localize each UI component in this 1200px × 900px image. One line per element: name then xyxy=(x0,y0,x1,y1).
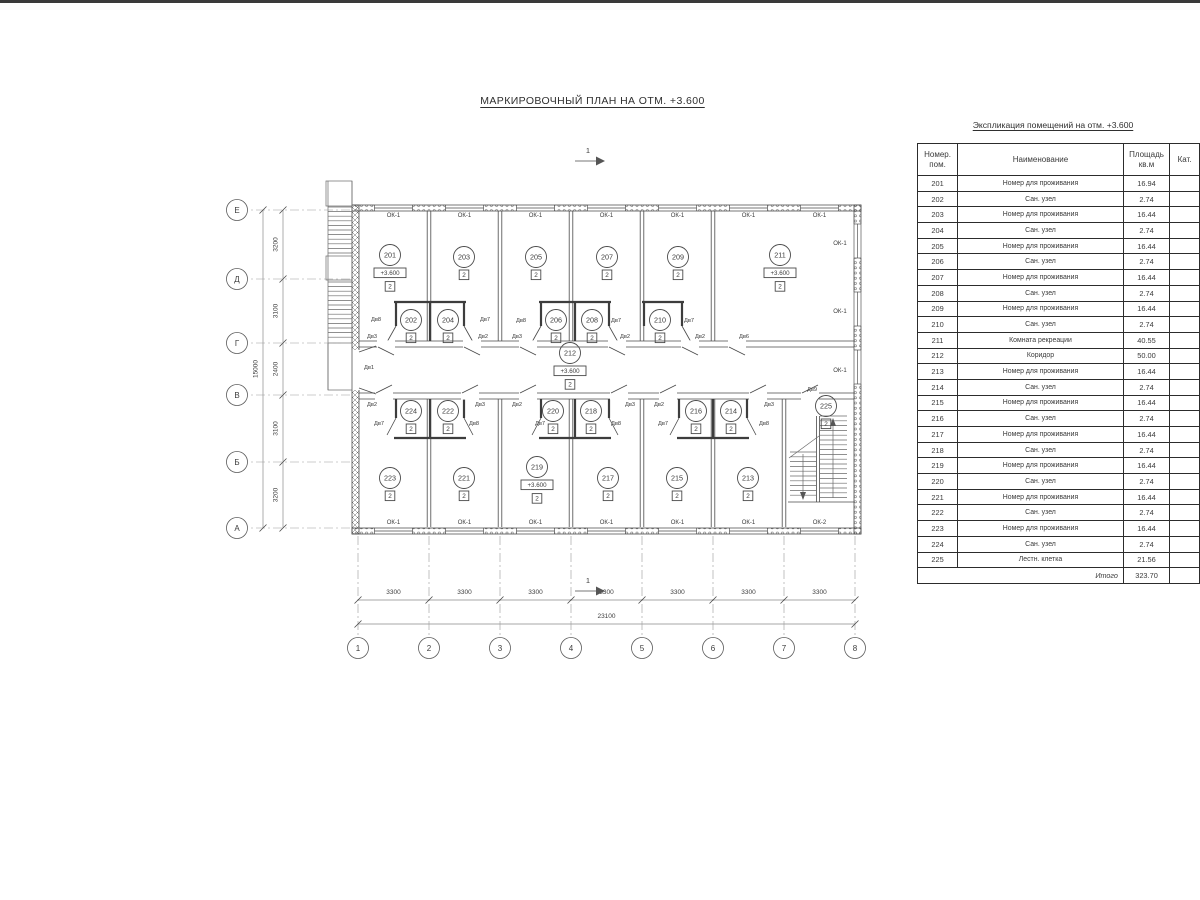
room-number-cell: 203 xyxy=(918,207,958,223)
room-name-cell: Номер для проживания xyxy=(958,489,1124,505)
svg-text:2: 2 xyxy=(388,284,392,291)
table-row: 203Номер для проживания16.44 xyxy=(918,207,1200,223)
table-row: 215Номер для проживания16.44 xyxy=(918,395,1200,411)
svg-text:203: 203 xyxy=(458,253,470,262)
room-label: 2092 xyxy=(668,247,689,280)
svg-text:Дв3: Дв3 xyxy=(367,334,377,340)
explication-table-wrap: Номер.пом. Наименование Площадькв.м Кат.… xyxy=(917,143,1200,584)
room-area-cell: 2.74 xyxy=(1123,442,1169,458)
svg-text:ОК-1: ОК-1 xyxy=(833,309,847,315)
exterior-stair-steps xyxy=(328,207,352,337)
svg-text:2: 2 xyxy=(388,493,392,500)
table-row: 209Номер для проживания16.44 xyxy=(918,301,1200,317)
svg-text:3300: 3300 xyxy=(670,589,685,596)
svg-text:Дв2: Дв2 xyxy=(695,334,705,340)
room-area-cell: 16.44 xyxy=(1123,395,1169,411)
svg-text:ОК-1: ОК-1 xyxy=(529,520,543,526)
svg-text:ОК-1: ОК-1 xyxy=(458,520,472,526)
room-label: 2182 xyxy=(581,401,602,434)
svg-text:ОК-1: ОК-1 xyxy=(529,213,543,219)
table-row: 211Комната рекреации40.55 xyxy=(918,332,1200,348)
room-number-cell: 211 xyxy=(918,332,958,348)
room-cat-cell xyxy=(1170,489,1200,505)
room-area-cell: 16.44 xyxy=(1123,458,1169,474)
room-number-cell: 221 xyxy=(918,489,958,505)
room-name-cell: Сан. узел xyxy=(958,223,1124,239)
svg-text:Б: Б xyxy=(234,458,239,467)
room-cat-cell xyxy=(1170,317,1200,333)
room-name-cell: Сан. узел xyxy=(958,191,1124,207)
svg-text:2: 2 xyxy=(658,335,662,342)
svg-text:Дв9: Дв9 xyxy=(807,387,817,393)
room-area-cell: 2.74 xyxy=(1123,411,1169,427)
svg-text:ОК-1: ОК-1 xyxy=(600,520,614,526)
room-number-cell: 207 xyxy=(918,270,958,286)
svg-text:2: 2 xyxy=(551,426,555,433)
room-number-cell: 215 xyxy=(918,395,958,411)
svg-text:2: 2 xyxy=(675,493,679,500)
svg-text:Дв7: Дв7 xyxy=(374,421,384,427)
svg-text:ОК-1: ОК-1 xyxy=(833,368,847,374)
col-cat: Кат. xyxy=(1170,144,1200,176)
svg-text:Д: Д xyxy=(234,275,240,284)
svg-text:3300: 3300 xyxy=(457,589,472,596)
svg-text:Дв2: Дв2 xyxy=(367,402,377,408)
svg-text:219: 219 xyxy=(531,463,543,472)
room-cat-cell xyxy=(1170,301,1200,317)
svg-text:2: 2 xyxy=(694,426,698,433)
room-area-cell: 16.44 xyxy=(1123,238,1169,254)
svg-text:Е: Е xyxy=(234,206,239,215)
svg-text:1: 1 xyxy=(356,644,361,653)
svg-text:204: 204 xyxy=(442,316,454,325)
svg-text:Дв3: Дв3 xyxy=(475,402,485,408)
svg-text:3100: 3100 xyxy=(273,421,280,436)
room-number-cell: 210 xyxy=(918,317,958,333)
svg-text:5: 5 xyxy=(640,644,645,653)
room-label: 2102 xyxy=(650,310,671,343)
room-number-cell: 216 xyxy=(918,411,958,427)
svg-text:Дв1: Дв1 xyxy=(364,365,374,371)
room-cat-cell xyxy=(1170,364,1200,380)
svg-text:Дв6: Дв6 xyxy=(739,334,749,340)
svg-text:А: А xyxy=(234,524,240,533)
exterior-stair xyxy=(326,181,352,390)
svg-text:+3.600: +3.600 xyxy=(527,482,547,489)
svg-text:213: 213 xyxy=(742,474,754,483)
room-cat-cell xyxy=(1170,427,1200,443)
room-label: 2202 xyxy=(543,401,564,434)
svg-text:216: 216 xyxy=(690,407,702,416)
svg-text:3: 3 xyxy=(498,644,503,653)
svg-text:15000: 15000 xyxy=(253,360,260,378)
svg-text:ОК-1: ОК-1 xyxy=(742,520,756,526)
room-cat-cell xyxy=(1170,379,1200,395)
svg-text:2: 2 xyxy=(535,496,539,503)
svg-text:Дв8: Дв8 xyxy=(759,421,769,427)
table-row: 201Номер для проживания16.94 xyxy=(918,176,1200,192)
svg-text:201: 201 xyxy=(384,251,396,260)
svg-text:206: 206 xyxy=(550,316,562,325)
room-area-cell: 16.44 xyxy=(1123,489,1169,505)
room-cat-cell xyxy=(1170,348,1200,364)
room-name-cell: Сан. узел xyxy=(958,379,1124,395)
room-name-cell: Номер для проживания xyxy=(958,521,1124,537)
room-number-cell: 218 xyxy=(918,442,958,458)
svg-text:Дв8: Дв8 xyxy=(371,317,381,323)
room-number-cell: 201 xyxy=(918,176,958,192)
room-area-cell: 2.74 xyxy=(1123,317,1169,333)
room-name-cell: Номер для проживания xyxy=(958,238,1124,254)
room-area-cell: 2.74 xyxy=(1123,505,1169,521)
svg-text:Дв7: Дв7 xyxy=(658,421,668,427)
room-cat-cell xyxy=(1170,191,1200,207)
room-cat-cell xyxy=(1170,270,1200,286)
total-cat-cell xyxy=(1170,568,1200,584)
room-cat-cell xyxy=(1170,207,1200,223)
svg-text:ОК-1: ОК-1 xyxy=(387,213,401,219)
room-area-cell: 2.74 xyxy=(1123,474,1169,490)
room-cat-cell xyxy=(1170,521,1200,537)
room-area-cell: 16.44 xyxy=(1123,364,1169,380)
table-row: 217Номер для проживания16.44 xyxy=(918,427,1200,443)
room-area-cell: 50.00 xyxy=(1123,348,1169,364)
room-number-cell: 213 xyxy=(918,364,958,380)
table-row: 222Сан. узел2.74 xyxy=(918,505,1200,521)
table-row: 219Номер для проживания16.44 xyxy=(918,458,1200,474)
drawing-sheet: МАРКИРОВОЧНЫЙ ПЛАН НА ОТМ. +3.600 Экспли… xyxy=(0,0,1200,900)
svg-text:3200: 3200 xyxy=(273,237,280,252)
svg-text:215: 215 xyxy=(671,474,683,483)
room-number-cell: 206 xyxy=(918,254,958,270)
svg-text:1: 1 xyxy=(586,146,590,155)
room-name-cell: Лестн. клетка xyxy=(958,552,1124,568)
room-number-cell: 220 xyxy=(918,474,958,490)
corridor-doors-group xyxy=(375,340,819,399)
room-name-cell: Коридор xyxy=(958,348,1124,364)
svg-text:ОК-1: ОК-1 xyxy=(813,213,827,219)
room-label: 2022 xyxy=(401,310,422,343)
table-row: 224Сан. узел2.74 xyxy=(918,536,1200,552)
col-num: Номер.пом. xyxy=(918,144,958,176)
svg-text:Дв2: Дв2 xyxy=(654,402,664,408)
svg-text:Дв2: Дв2 xyxy=(512,402,522,408)
room-name-cell: Номер для проживания xyxy=(958,207,1124,223)
room-cat-cell xyxy=(1170,442,1200,458)
svg-text:+3.600: +3.600 xyxy=(770,270,790,277)
room-area-cell: 16.44 xyxy=(1123,521,1169,537)
svg-text:222: 222 xyxy=(442,407,454,416)
room-number-cell: 209 xyxy=(918,301,958,317)
svg-text:225: 225 xyxy=(820,402,832,411)
svg-text:3300: 3300 xyxy=(741,589,756,596)
room-number-cell: 219 xyxy=(918,458,958,474)
table-row: 208Сан. узел2.74 xyxy=(918,285,1200,301)
room-area-cell: 2.74 xyxy=(1123,223,1169,239)
svg-text:218: 218 xyxy=(585,407,597,416)
room-number-cell: 204 xyxy=(918,223,958,239)
table-row: 225Лестн. клетка21.56 xyxy=(918,552,1200,568)
dim-labels-group: 3300330033003300330033003300231003200310… xyxy=(253,237,828,620)
svg-text:8: 8 xyxy=(853,644,858,653)
room-cat-cell xyxy=(1170,254,1200,270)
room-label: 201+3.6002 xyxy=(374,245,406,292)
room-number-cell: 225 xyxy=(918,552,958,568)
svg-text:212: 212 xyxy=(564,349,576,358)
svg-text:Дв8: Дв8 xyxy=(516,318,526,324)
svg-text:220: 220 xyxy=(547,407,559,416)
svg-text:209: 209 xyxy=(672,253,684,262)
explication-header-row: Номер.пом. Наименование Площадькв.м Кат. xyxy=(918,144,1200,176)
svg-text:3300: 3300 xyxy=(812,589,827,596)
svg-text:ОК-1: ОК-1 xyxy=(458,213,472,219)
svg-text:Дв7: Дв7 xyxy=(611,318,621,324)
room-label: 2142 xyxy=(721,401,742,434)
svg-text:224: 224 xyxy=(405,407,417,416)
svg-text:Дв2: Дв2 xyxy=(620,334,630,340)
svg-text:ОК-1: ОК-1 xyxy=(833,241,847,247)
svg-text:3200: 3200 xyxy=(273,487,280,502)
svg-text:2: 2 xyxy=(676,272,680,279)
room-area-cell: 2.74 xyxy=(1123,536,1169,552)
room-label: 2222 xyxy=(438,401,459,434)
svg-text:ОК-1: ОК-1 xyxy=(671,520,685,526)
room-area-cell: 16.44 xyxy=(1123,427,1169,443)
col-name: Наименование xyxy=(958,144,1124,176)
svg-text:6: 6 xyxy=(711,644,716,653)
table-row: 213Номер для проживания16.44 xyxy=(918,364,1200,380)
table-row: 202Сан. узел2.74 xyxy=(918,191,1200,207)
room-label: 2062 xyxy=(546,310,567,343)
svg-text:3300: 3300 xyxy=(528,589,543,596)
svg-text:Г: Г xyxy=(235,339,240,348)
room-name-cell: Сан. узел xyxy=(958,411,1124,427)
table-row: 220Сан. узел2.74 xyxy=(918,474,1200,490)
table-row: 204Сан. узел2.74 xyxy=(918,223,1200,239)
room-label: 2172 xyxy=(598,468,619,501)
svg-text:2: 2 xyxy=(729,426,733,433)
table-row: 206Сан. узел2.74 xyxy=(918,254,1200,270)
room-area-cell: 2.74 xyxy=(1123,285,1169,301)
svg-text:2: 2 xyxy=(589,426,593,433)
svg-text:211: 211 xyxy=(774,251,785,260)
table-row: 223Номер для проживания16.44 xyxy=(918,521,1200,537)
room-name-cell: Номер для проживания xyxy=(958,395,1124,411)
room-label: 2042 xyxy=(438,310,459,343)
table-row: 212Коридор50.00 xyxy=(918,348,1200,364)
table-row: 207Номер для проживания16.44 xyxy=(918,270,1200,286)
room-cat-cell xyxy=(1170,395,1200,411)
room-number-cell: 223 xyxy=(918,521,958,537)
table-row: 218Сан. узел2.74 xyxy=(918,442,1200,458)
svg-text:Дв7: Дв7 xyxy=(535,421,545,427)
room-area-cell: 16.44 xyxy=(1123,207,1169,223)
room-name-cell: Номер для проживания xyxy=(958,301,1124,317)
svg-text:2: 2 xyxy=(446,426,450,433)
explication-table: Номер.пом. Наименование Площадькв.м Кат.… xyxy=(917,143,1200,584)
total-row: Итого 323.70 xyxy=(918,568,1200,584)
svg-text:221: 221 xyxy=(458,474,470,483)
svg-text:ОК-1: ОК-1 xyxy=(671,213,685,219)
room-area-cell: 21.56 xyxy=(1123,552,1169,568)
svg-text:2: 2 xyxy=(462,272,466,279)
room-label: 2232 xyxy=(380,468,401,501)
svg-text:217: 217 xyxy=(602,474,614,483)
svg-text:+3.600: +3.600 xyxy=(560,368,580,375)
svg-text:207: 207 xyxy=(601,253,613,262)
table-row: 214Сан. узел2.74 xyxy=(918,379,1200,395)
room-label: 2162 xyxy=(686,401,707,434)
svg-text:2400: 2400 xyxy=(273,361,280,376)
svg-text:+3.600: +3.600 xyxy=(380,270,400,277)
room-cat-cell xyxy=(1170,285,1200,301)
svg-text:Дв3: Дв3 xyxy=(764,402,774,408)
room-number-cell: 214 xyxy=(918,379,958,395)
svg-text:2: 2 xyxy=(824,421,828,428)
room-area-cell: 2.74 xyxy=(1123,379,1169,395)
rooms-group: 201+3.6002202220322042205220622072208220… xyxy=(374,245,837,504)
windows-group xyxy=(375,204,862,534)
room-cat-cell xyxy=(1170,176,1200,192)
room-name-cell: Сан. узел xyxy=(958,442,1124,458)
room-cat-cell xyxy=(1170,505,1200,521)
svg-text:2: 2 xyxy=(534,272,538,279)
svg-text:4: 4 xyxy=(569,644,574,653)
room-name-cell: Сан. узел xyxy=(958,317,1124,333)
svg-text:Дв7: Дв7 xyxy=(684,318,694,324)
svg-text:ОК-1: ОК-1 xyxy=(742,213,756,219)
svg-text:2: 2 xyxy=(568,382,572,389)
svg-text:Дв2: Дв2 xyxy=(478,334,488,340)
room-name-cell: Номер для проживания xyxy=(958,458,1124,474)
room-label: 2052 xyxy=(526,247,547,280)
room-label: 211+3.6002 xyxy=(764,245,796,292)
room-name-cell: Номер для проживания xyxy=(958,364,1124,380)
svg-text:2: 2 xyxy=(590,335,594,342)
svg-text:2: 2 xyxy=(409,335,413,342)
svg-text:2: 2 xyxy=(605,272,609,279)
svg-text:2: 2 xyxy=(462,493,466,500)
room-area-cell: 16.94 xyxy=(1123,176,1169,192)
svg-text:2: 2 xyxy=(446,335,450,342)
room-cat-cell xyxy=(1170,223,1200,239)
svg-text:2: 2 xyxy=(606,493,610,500)
table-row: 205Номер для проживания16.44 xyxy=(918,238,1200,254)
room-number-cell: 222 xyxy=(918,505,958,521)
svg-text:202: 202 xyxy=(405,316,417,325)
room-area-cell: 2.74 xyxy=(1123,254,1169,270)
svg-text:ОК-2: ОК-2 xyxy=(813,520,827,526)
room-cat-cell xyxy=(1170,411,1200,427)
room-label: 2072 xyxy=(597,247,618,280)
room-name-cell: Комната рекреации xyxy=(958,332,1124,348)
room-name-cell: Сан. узел xyxy=(958,505,1124,521)
room-cat-cell xyxy=(1170,332,1200,348)
room-name-cell: Сан. узел xyxy=(958,254,1124,270)
svg-text:ОК-1: ОК-1 xyxy=(600,213,614,219)
room-area-cell: 16.44 xyxy=(1123,301,1169,317)
staircase-steps xyxy=(790,416,847,498)
room-area-cell: 40.55 xyxy=(1123,332,1169,348)
room-cat-cell xyxy=(1170,536,1200,552)
room-name-cell: Номер для проживания xyxy=(958,270,1124,286)
svg-text:ОК-1: ОК-1 xyxy=(387,520,401,526)
room-label: 2212 xyxy=(454,468,475,501)
svg-text:23100: 23100 xyxy=(597,613,615,620)
svg-text:205: 205 xyxy=(530,253,542,262)
room-name-cell: Сан. узел xyxy=(958,285,1124,301)
room-label: 2082 xyxy=(582,310,603,343)
room-label: 212+3.6002 xyxy=(554,343,586,390)
svg-text:В: В xyxy=(234,391,239,400)
room-area-cell: 16.44 xyxy=(1123,270,1169,286)
svg-text:223: 223 xyxy=(384,474,396,483)
svg-text:3100: 3100 xyxy=(273,303,280,318)
room-cat-cell xyxy=(1170,238,1200,254)
svg-text:Дв3: Дв3 xyxy=(512,334,522,340)
room-label: 219+3.6002 xyxy=(521,457,553,504)
room-cat-cell xyxy=(1170,474,1200,490)
room-name-cell: Номер для проживания xyxy=(958,427,1124,443)
table-row: 221Номер для проживания16.44 xyxy=(918,489,1200,505)
svg-text:2: 2 xyxy=(427,644,432,653)
svg-text:2: 2 xyxy=(778,284,782,291)
room-name-cell: Сан. узел xyxy=(958,474,1124,490)
room-number-cell: 224 xyxy=(918,536,958,552)
svg-text:Дв7: Дв7 xyxy=(480,317,490,323)
room-name-cell: Сан. узел xyxy=(958,536,1124,552)
table-row: 216Сан. узел2.74 xyxy=(918,411,1200,427)
explication-body: 201Номер для проживания16.94202Сан. узел… xyxy=(918,176,1200,568)
svg-text:2: 2 xyxy=(554,335,558,342)
svg-text:2: 2 xyxy=(746,493,750,500)
total-value: 323.70 xyxy=(1123,568,1169,584)
room-label: 2152 xyxy=(667,468,688,501)
svg-text:Дв8: Дв8 xyxy=(611,421,621,427)
svg-text:1: 1 xyxy=(586,576,590,585)
room-number-cell: 205 xyxy=(918,238,958,254)
col-area: Площадькв.м xyxy=(1123,144,1169,176)
svg-text:214: 214 xyxy=(725,407,737,416)
svg-text:210: 210 xyxy=(654,316,666,325)
svg-text:7: 7 xyxy=(782,644,787,653)
room-number-cell: 217 xyxy=(918,427,958,443)
svg-text:3300: 3300 xyxy=(386,589,401,596)
room-label: 2032 xyxy=(454,247,475,280)
table-row: 210Сан. узел2.74 xyxy=(918,317,1200,333)
room-cat-cell xyxy=(1170,458,1200,474)
room-number-cell: 212 xyxy=(918,348,958,364)
room-name-cell: Номер для проживания xyxy=(958,176,1124,192)
svg-text:2: 2 xyxy=(409,426,413,433)
room-number-cell: 202 xyxy=(918,191,958,207)
room-number-cell: 208 xyxy=(918,285,958,301)
corridor-walls xyxy=(359,341,854,399)
svg-text:208: 208 xyxy=(586,316,598,325)
svg-text:Дв3: Дв3 xyxy=(625,402,635,408)
room-area-cell: 2.74 xyxy=(1123,191,1169,207)
room-label: 2242 xyxy=(401,401,422,434)
room-cat-cell xyxy=(1170,552,1200,568)
room-label: 2132 xyxy=(738,468,759,501)
svg-text:Дв8: Дв8 xyxy=(469,421,479,427)
total-label: Итого xyxy=(918,568,1124,584)
